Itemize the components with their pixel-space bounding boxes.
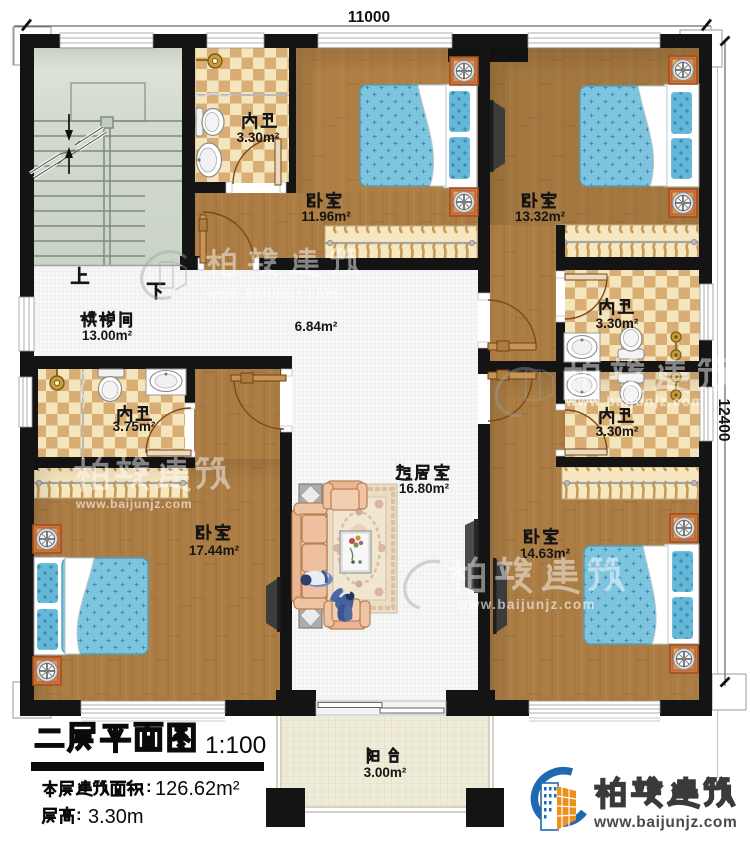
- svg-text:www.baijunjz.com: www.baijunjz.com: [75, 497, 192, 511]
- svg-text:11.96m²: 11.96m²: [301, 209, 351, 224]
- svg-text:3.30m²: 3.30m²: [596, 424, 639, 439]
- svg-text:11000: 11000: [348, 9, 390, 26]
- svg-text:12400: 12400: [715, 398, 732, 441]
- svg-text::: :: [76, 805, 82, 824]
- svg-text:17.44m²: 17.44m²: [189, 543, 240, 558]
- svg-text:126.62m²: 126.62m²: [155, 778, 240, 800]
- svg-text:www.baijunjz.com: www.baijunjz.com: [456, 597, 596, 612]
- svg-text:www.baijunjz.com: www.baijunjz.com: [593, 814, 737, 831]
- svg-text:16.80m²: 16.80m²: [399, 481, 450, 496]
- svg-text:13.00m²: 13.00m²: [82, 328, 133, 343]
- svg-text:3.30m: 3.30m: [88, 806, 144, 828]
- svg-text:3.30m²: 3.30m²: [596, 316, 639, 331]
- svg-text:3.75m²: 3.75m²: [113, 419, 156, 434]
- svg-text:www.baijunjz.com: www.baijunjz.com: [565, 394, 705, 409]
- svg-text:www.baijunjz.com: www.baijunjz.com: [206, 286, 338, 301]
- svg-text:3.00m²: 3.00m²: [364, 765, 407, 780]
- svg-text:1:100: 1:100: [205, 732, 266, 759]
- svg-text::: :: [146, 777, 152, 796]
- svg-text:3.30m²: 3.30m²: [237, 130, 280, 145]
- svg-text:13.32m²: 13.32m²: [515, 209, 566, 224]
- svg-text:6.84m²: 6.84m²: [295, 319, 338, 334]
